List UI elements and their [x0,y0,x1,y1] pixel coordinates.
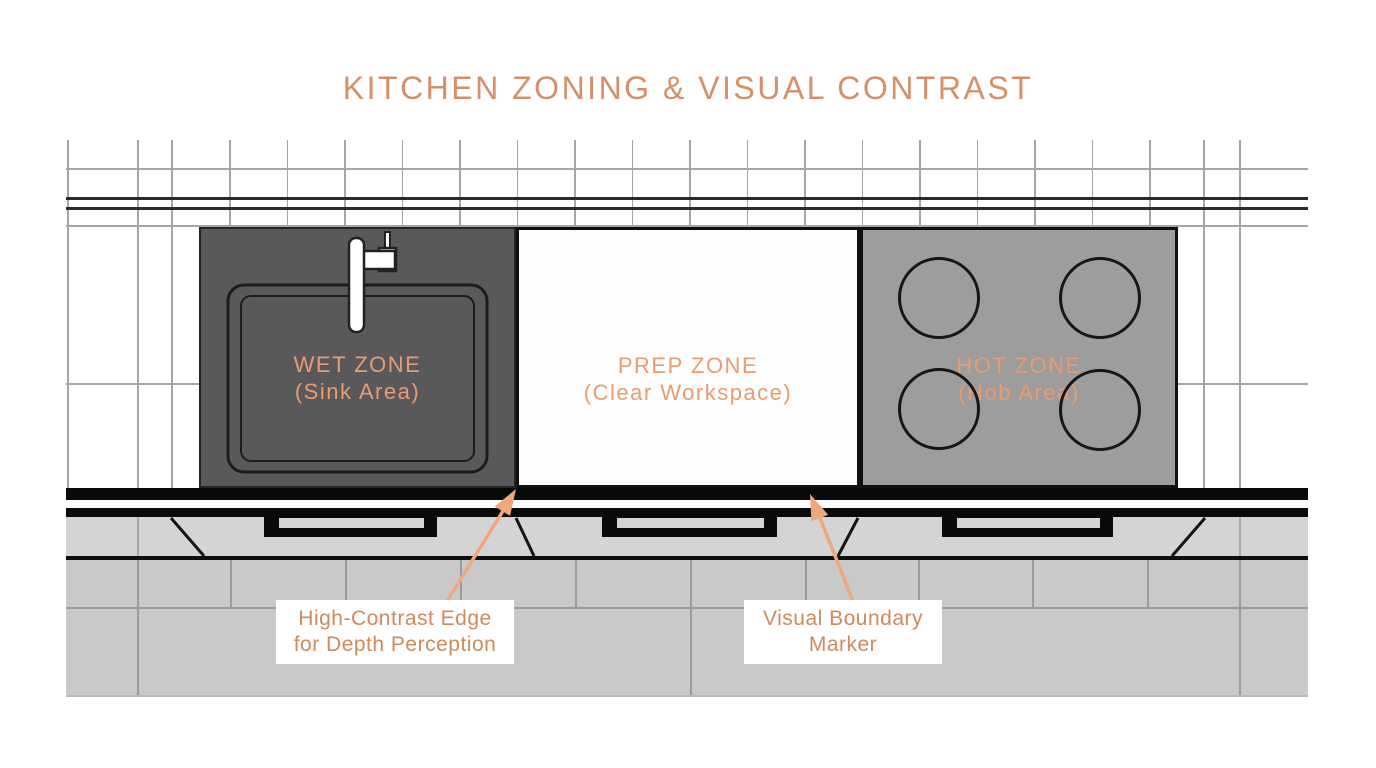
kitchen-zoning-diagram: KITCHEN ZONING & VISUAL CONTRAST WET ZON… [0,0,1376,768]
hob-burner [898,257,980,339]
faucet-arm [362,251,395,269]
plinth-brick-row-lower [66,609,1308,697]
brick-joint-line [137,560,139,608]
prep-zone: PREP ZONE (Clear Workspace) [516,227,860,488]
wall-rail-line [66,207,1308,210]
tile-grid-hline [66,168,1308,170]
tile-grid-vline [1239,140,1241,488]
drawer-handle [942,508,1113,537]
brick-joint-line [690,609,692,695]
hot-zone: HOT ZONE (Hob Area) [860,227,1178,488]
tile-grid-vline [1203,140,1205,488]
sink-icon [201,229,514,486]
plinth-brick-row-upper [66,560,1308,610]
hob-burner [898,368,980,450]
annotation-label-high-contrast-edge: High-Contrast Edge for Depth Perception [276,600,514,664]
countertop-high-contrast-edge [66,488,1308,500]
brick-joint-line [575,560,577,608]
hob-burner [1059,257,1141,339]
drawer-handle [602,508,777,537]
hob-burner [1059,369,1141,451]
brick-joint-line [137,609,139,695]
brick-joint-line [690,560,692,608]
prep-zone-label: PREP ZONE (Clear Workspace) [519,352,857,406]
brick-joint-line [1032,560,1034,608]
annotation-line: Marker [744,632,942,658]
annotation-label-visual-boundary: Visual Boundary Marker [744,600,942,664]
tile-grid-vline [137,140,139,488]
cabinet-panel-line [137,517,139,556]
tile-grid-vline [171,140,173,488]
page-title: KITCHEN ZONING & VISUAL CONTRAST [0,70,1376,107]
brick-joint-line [1239,560,1241,608]
brick-joint-line [1239,609,1241,695]
zone-subtitle: (Clear Workspace) [519,379,857,406]
drawer-handle-slot [279,518,424,528]
drawer-handle-slot [617,518,764,528]
annotation-line: Visual Boundary [744,606,942,632]
zone-title: HOT ZONE [863,352,1175,379]
annotation-line: for Depth Perception [276,632,514,658]
tile-grid-vline [67,140,69,488]
wet-zone: WET ZONE (Sink Area) [199,227,516,488]
faucet-pipe [349,238,364,332]
wall-rail-line [66,197,1308,200]
drawer-handle-slot [957,518,1100,528]
annotation-line: High-Contrast Edge [276,606,514,632]
brick-joint-line [1147,560,1149,608]
zone-title: PREP ZONE [519,352,857,379]
drawer-handle [264,508,437,537]
brick-joint-line [230,560,232,608]
cabinet-panel-line [1239,517,1241,556]
